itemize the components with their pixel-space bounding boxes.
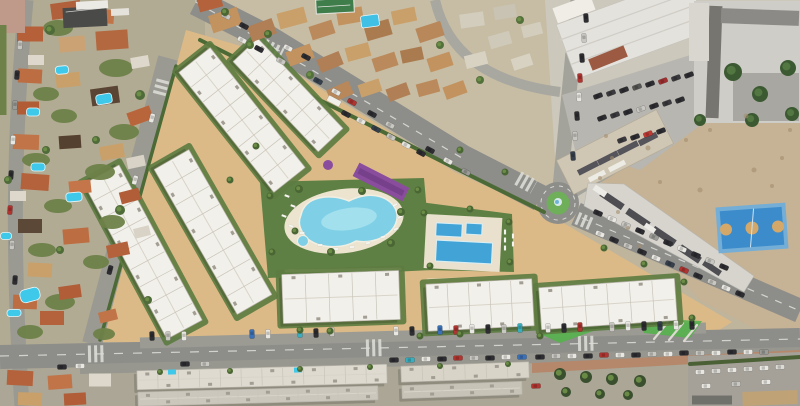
parked-car xyxy=(711,368,720,373)
parked-car xyxy=(576,92,581,102)
stair-core xyxy=(338,274,342,277)
tree-highlight xyxy=(422,211,426,215)
car-glass xyxy=(472,356,475,359)
parked-car xyxy=(469,324,474,333)
tree-highlight xyxy=(359,188,363,192)
car-glass xyxy=(642,324,646,328)
house-roof-shape xyxy=(64,392,87,405)
scrub-patch xyxy=(698,188,703,193)
green-median xyxy=(0,25,7,115)
car-glass xyxy=(504,355,507,358)
dark-structure-shape xyxy=(692,396,732,405)
backyard-pool xyxy=(31,163,45,171)
car-glass xyxy=(15,72,19,76)
white-awning-shape xyxy=(76,0,108,10)
car-glass xyxy=(575,113,579,117)
parked-car xyxy=(531,383,540,388)
house-roof xyxy=(89,374,111,387)
house-roof xyxy=(18,219,42,233)
stair-core xyxy=(477,283,481,286)
yard xyxy=(85,164,115,180)
car-glass xyxy=(586,354,589,357)
car-glass xyxy=(734,382,738,386)
car-glass xyxy=(698,370,702,374)
sun-lounger-shape xyxy=(300,232,305,234)
tree-highlight xyxy=(642,262,646,266)
court-key xyxy=(772,221,784,233)
parked-car xyxy=(393,326,398,335)
stair-core xyxy=(510,390,514,393)
parked-car xyxy=(657,321,662,330)
stair-core xyxy=(366,395,370,398)
parked-car xyxy=(579,53,584,63)
parked-car xyxy=(57,365,66,370)
car-glass xyxy=(10,242,14,246)
tan-building-shape xyxy=(742,390,797,406)
parked-car xyxy=(180,362,189,367)
scrub-patch xyxy=(658,180,662,184)
parked-car xyxy=(501,324,506,333)
parked-car xyxy=(200,362,209,367)
tree-highlight xyxy=(228,178,232,182)
sun-lounger-shape xyxy=(318,244,323,246)
car-glass xyxy=(746,367,750,371)
stair-core xyxy=(450,386,454,389)
car-glass xyxy=(18,42,22,46)
stair-core xyxy=(474,375,478,378)
stair-core xyxy=(363,316,367,319)
car-glass xyxy=(578,325,582,329)
tree-highlight xyxy=(293,229,297,233)
stair-core xyxy=(430,392,434,395)
tree-highlight xyxy=(597,391,602,396)
scrub-patch xyxy=(646,146,651,151)
scrub-patch xyxy=(788,128,792,132)
tree-highlight xyxy=(298,367,301,370)
roundabout-ornament-blue xyxy=(555,200,559,204)
tree-highlight xyxy=(625,392,630,397)
townhouse-pool-shape xyxy=(168,369,176,374)
car-glass xyxy=(183,362,186,365)
tree-highlight xyxy=(247,42,251,46)
tree-highlight xyxy=(636,377,642,383)
car-glass xyxy=(618,353,621,356)
car-glass xyxy=(674,323,678,327)
house-roof xyxy=(13,134,40,150)
house-roof-shape xyxy=(28,55,44,65)
car-glass xyxy=(456,356,459,359)
yard xyxy=(99,59,133,77)
tan-building xyxy=(742,390,797,406)
parked-car xyxy=(759,365,768,370)
car-glass xyxy=(584,15,588,19)
tree-highlight xyxy=(727,66,736,75)
tree-highlight xyxy=(117,207,122,212)
lap-pool-shape xyxy=(436,223,463,237)
yard xyxy=(33,87,59,101)
stair-core xyxy=(250,382,254,385)
parked-car xyxy=(577,322,582,331)
tree-highlight xyxy=(563,389,568,394)
community-pool xyxy=(360,14,379,28)
parked-car xyxy=(570,151,575,161)
car-glass xyxy=(582,35,586,39)
parked-car xyxy=(695,369,704,374)
yard-shape xyxy=(51,109,77,123)
car-glass xyxy=(520,355,523,358)
car-glass xyxy=(626,324,630,328)
car-glass xyxy=(486,327,490,331)
tree-highlight xyxy=(268,194,272,198)
stair-core xyxy=(326,396,330,399)
car-glass xyxy=(394,329,398,333)
stair-core xyxy=(146,394,150,397)
yard-shape xyxy=(85,164,115,180)
stair-core xyxy=(266,391,270,394)
yard-shape xyxy=(33,87,59,101)
tree-highlight xyxy=(254,144,257,148)
backyard-pool xyxy=(7,309,21,316)
yard xyxy=(28,243,56,257)
car-glass xyxy=(502,327,506,331)
car-glass xyxy=(658,324,662,328)
house-roof xyxy=(48,374,73,390)
parked-car xyxy=(695,351,704,356)
scrub-patch xyxy=(610,156,614,160)
house-roof-shape xyxy=(95,29,128,50)
tree-highlight xyxy=(368,365,371,368)
stair-core xyxy=(354,367,358,370)
stair-core xyxy=(145,372,149,375)
tree-highlight xyxy=(608,375,614,381)
yard xyxy=(93,328,115,340)
parked-car xyxy=(14,70,19,80)
car-glass xyxy=(488,356,491,359)
car-glass xyxy=(682,351,685,354)
car-glass xyxy=(580,55,584,59)
parked-car xyxy=(453,356,462,361)
scrub-patch xyxy=(626,226,630,230)
house-roof xyxy=(10,191,26,201)
stair-core xyxy=(316,317,320,320)
parked-car xyxy=(485,356,494,361)
stair-core xyxy=(333,380,337,383)
car-glass xyxy=(546,326,550,330)
sun-lounger-shape xyxy=(512,234,514,239)
tree-highlight xyxy=(538,334,542,338)
parked-car xyxy=(485,324,490,333)
car-glass xyxy=(610,325,614,329)
car-glass xyxy=(8,207,12,211)
car-glass xyxy=(704,384,708,388)
parked-car xyxy=(12,100,17,110)
tree-highlight xyxy=(388,240,392,244)
stair-core xyxy=(452,366,456,369)
community-pool-shape xyxy=(360,14,379,28)
stair-core xyxy=(346,389,350,392)
stair-core xyxy=(286,397,290,400)
parked-car xyxy=(679,351,688,356)
tree-highlight xyxy=(696,116,702,122)
car-glass xyxy=(746,350,749,353)
car-glass xyxy=(602,353,605,356)
car-glass xyxy=(11,137,15,141)
yard-shape xyxy=(99,215,125,229)
car-glass xyxy=(454,328,458,332)
playground-purple xyxy=(323,160,333,170)
parked-car xyxy=(625,321,630,330)
parked-car xyxy=(641,321,646,330)
sun-lounger xyxy=(504,238,506,243)
stair-core xyxy=(375,378,379,381)
parked-car xyxy=(517,323,522,332)
car-glass xyxy=(408,358,411,361)
scrub-patch xyxy=(598,176,602,180)
parked-car xyxy=(583,13,588,23)
stair-core xyxy=(573,322,577,325)
parked-car xyxy=(165,331,170,340)
car-glass xyxy=(764,380,768,384)
stair-core xyxy=(186,393,190,396)
car-glass xyxy=(9,172,13,176)
parked-car xyxy=(731,381,740,386)
stair-core xyxy=(166,400,170,403)
tree-highlight xyxy=(158,370,161,373)
parked-car xyxy=(759,350,768,355)
car-glass xyxy=(150,334,154,338)
tree-highlight xyxy=(503,170,507,174)
yard xyxy=(109,124,139,140)
parked-car xyxy=(567,354,576,359)
sun-lounger-shape xyxy=(349,246,354,249)
house-roof xyxy=(7,370,34,386)
house-roof xyxy=(40,311,64,325)
backyard-pool-shape xyxy=(55,65,69,74)
car-glass xyxy=(570,354,573,357)
parked-car xyxy=(743,350,752,355)
backyard-pool xyxy=(66,192,83,202)
scrub-patch xyxy=(770,184,774,188)
tree-highlight xyxy=(298,328,302,332)
scrub-patch xyxy=(638,244,642,248)
tree-highlight xyxy=(458,332,462,336)
backyard-pool xyxy=(1,233,12,240)
townhouse-pool xyxy=(168,369,176,374)
tree-highlight xyxy=(468,207,472,211)
tree-highlight xyxy=(93,137,97,141)
tree-highlight xyxy=(556,370,562,376)
tree-highlight xyxy=(5,177,9,181)
tree-highlight xyxy=(787,109,794,116)
house-roof-shape xyxy=(28,262,53,277)
yard-shape xyxy=(83,255,109,269)
parked-car xyxy=(711,351,720,356)
house-roof-shape xyxy=(58,35,85,52)
parked-car xyxy=(409,326,414,335)
house-roof-shape xyxy=(13,134,40,150)
backyard-pool xyxy=(27,108,40,116)
stair-core xyxy=(639,283,643,286)
white-awning xyxy=(76,0,108,10)
yard-shape xyxy=(17,325,43,339)
yard xyxy=(51,109,77,123)
tree-highlight xyxy=(416,188,420,192)
tree-highlight xyxy=(508,260,512,264)
stair-core xyxy=(410,387,414,390)
car-glass xyxy=(762,366,766,370)
sun-lounger xyxy=(512,234,514,239)
main-pool xyxy=(435,240,492,264)
lap-pool-shape xyxy=(466,223,483,235)
tree-highlight xyxy=(458,148,462,152)
house-roof xyxy=(58,35,85,52)
parked-car xyxy=(761,379,770,384)
tree-highlight xyxy=(437,42,441,46)
car-glass xyxy=(714,351,717,354)
stair-core xyxy=(519,281,523,284)
parked-car xyxy=(663,352,672,357)
house-roof xyxy=(28,55,44,65)
car-glass xyxy=(698,351,701,354)
car-glass xyxy=(266,332,270,336)
stair-core xyxy=(270,369,274,372)
yard-shape xyxy=(93,328,115,340)
sun-lounger xyxy=(504,246,506,251)
tree-highlight xyxy=(682,280,686,284)
parked-car xyxy=(689,320,694,329)
plaza-white xyxy=(689,3,709,61)
car-glass xyxy=(440,357,443,360)
corner-roof-strip xyxy=(721,8,799,26)
house-roof-shape xyxy=(62,227,89,244)
parked-car xyxy=(517,355,526,360)
sun-lounger xyxy=(300,232,305,234)
tree-highlight xyxy=(428,264,432,268)
stair-core xyxy=(226,392,230,395)
car-glass xyxy=(534,384,538,388)
yard-shape xyxy=(99,59,133,77)
scrub-patch xyxy=(708,128,712,132)
car-glass xyxy=(60,365,63,368)
car-glass xyxy=(577,94,581,98)
tree-highlight xyxy=(145,297,149,301)
parked-car xyxy=(545,323,550,332)
white-awning-shape xyxy=(111,8,129,16)
stair-core xyxy=(470,391,474,394)
parked-car xyxy=(727,367,736,372)
tree-highlight xyxy=(477,77,481,81)
parked-car xyxy=(437,357,446,362)
parked-car xyxy=(7,205,12,215)
stair-core xyxy=(409,368,413,371)
sun-lounger xyxy=(318,244,323,246)
car-glass xyxy=(650,352,653,355)
house-roof xyxy=(20,173,49,191)
lap-pool xyxy=(466,223,483,235)
car-glass xyxy=(438,328,442,332)
parked-car xyxy=(615,353,624,358)
tree-highlight xyxy=(602,246,606,250)
sun-lounger xyxy=(349,246,354,249)
stair-core xyxy=(306,390,310,393)
tree-highlight xyxy=(418,334,422,338)
parked-car xyxy=(574,111,579,121)
parked-car xyxy=(9,240,14,250)
tree-highlight xyxy=(57,247,61,251)
parked-car xyxy=(469,356,478,361)
tree-highlight xyxy=(137,92,142,97)
house-roof-shape xyxy=(89,374,111,387)
stair-core xyxy=(495,365,499,368)
parked-car xyxy=(249,329,254,338)
car-glass xyxy=(573,133,577,137)
stair-core xyxy=(435,286,439,289)
parked-car xyxy=(609,322,614,331)
car-glass xyxy=(203,362,206,365)
tree-highlight xyxy=(265,31,269,35)
stair-core xyxy=(291,381,295,384)
parked-car xyxy=(572,131,577,141)
house-roof xyxy=(62,227,89,244)
house-roof-shape xyxy=(59,135,82,150)
parked-car xyxy=(581,33,586,43)
parked-car xyxy=(17,40,22,50)
parked-car xyxy=(599,353,608,358)
house-roof xyxy=(95,29,128,50)
stair-core xyxy=(431,376,435,379)
car-glass xyxy=(518,326,522,330)
parked-car xyxy=(389,358,398,363)
car-glass xyxy=(182,334,186,338)
parked-car xyxy=(561,323,566,332)
stair-core xyxy=(593,286,597,289)
aerial-site-plan xyxy=(0,0,800,406)
stair-core xyxy=(664,316,668,319)
stair-core xyxy=(166,384,170,387)
sun-lounger-shape xyxy=(504,238,506,243)
car-glass xyxy=(714,369,718,373)
stair-core xyxy=(490,384,494,387)
tree-highlight xyxy=(507,220,511,224)
house-roof xyxy=(18,68,43,83)
parked-car xyxy=(631,353,640,358)
corner-roof-strip-shape xyxy=(721,8,799,26)
parked-car xyxy=(313,328,318,337)
house-roof-shape xyxy=(7,370,34,386)
parked-car xyxy=(265,329,270,338)
house-roof xyxy=(18,392,42,406)
satellite-render-canvas xyxy=(0,0,800,406)
parked-car xyxy=(743,366,752,371)
car-glass xyxy=(578,75,582,79)
scrub-patch xyxy=(780,156,784,160)
yard xyxy=(99,215,125,229)
scrub-patch xyxy=(752,168,757,173)
tree-highlight xyxy=(328,329,332,333)
parked-car xyxy=(583,354,592,359)
parked-car xyxy=(437,325,442,334)
car-glass xyxy=(666,352,669,355)
house-roof-shape xyxy=(20,173,49,191)
car-glass xyxy=(762,350,765,353)
car-glass xyxy=(314,331,318,335)
car-glass xyxy=(778,365,782,369)
parked-car xyxy=(577,73,582,83)
stair-core xyxy=(618,319,622,322)
car-glass xyxy=(424,357,427,360)
sun-lounger xyxy=(512,242,514,247)
car-glass xyxy=(554,354,557,357)
